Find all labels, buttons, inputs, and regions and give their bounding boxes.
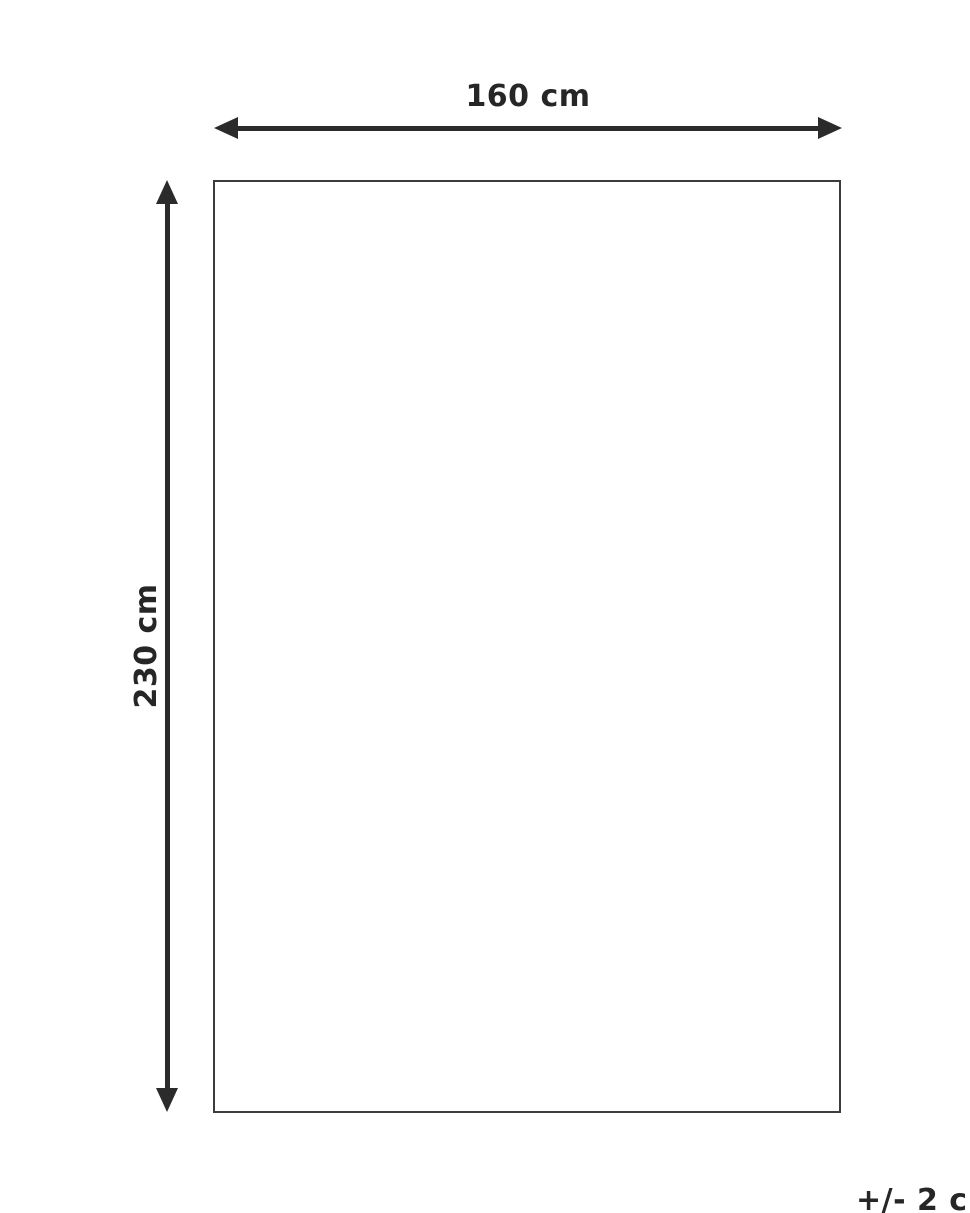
height-arrow-shaft xyxy=(165,198,170,1094)
width-dimension-arrow xyxy=(214,117,842,140)
height-dimension-label: 230 cm xyxy=(132,583,162,708)
width-dimension-label: 160 cm xyxy=(418,82,638,112)
width-arrow-shaft xyxy=(232,126,824,131)
arrowhead-right-icon xyxy=(818,117,842,139)
tolerance-label: +/- 2 cm xyxy=(856,1186,970,1213)
product-outline-rectangle xyxy=(213,180,841,1113)
arrowhead-down-icon xyxy=(156,1088,178,1112)
dimension-diagram-canvas: 160 cm 230 cm +/- 2 cm xyxy=(0,0,970,1213)
